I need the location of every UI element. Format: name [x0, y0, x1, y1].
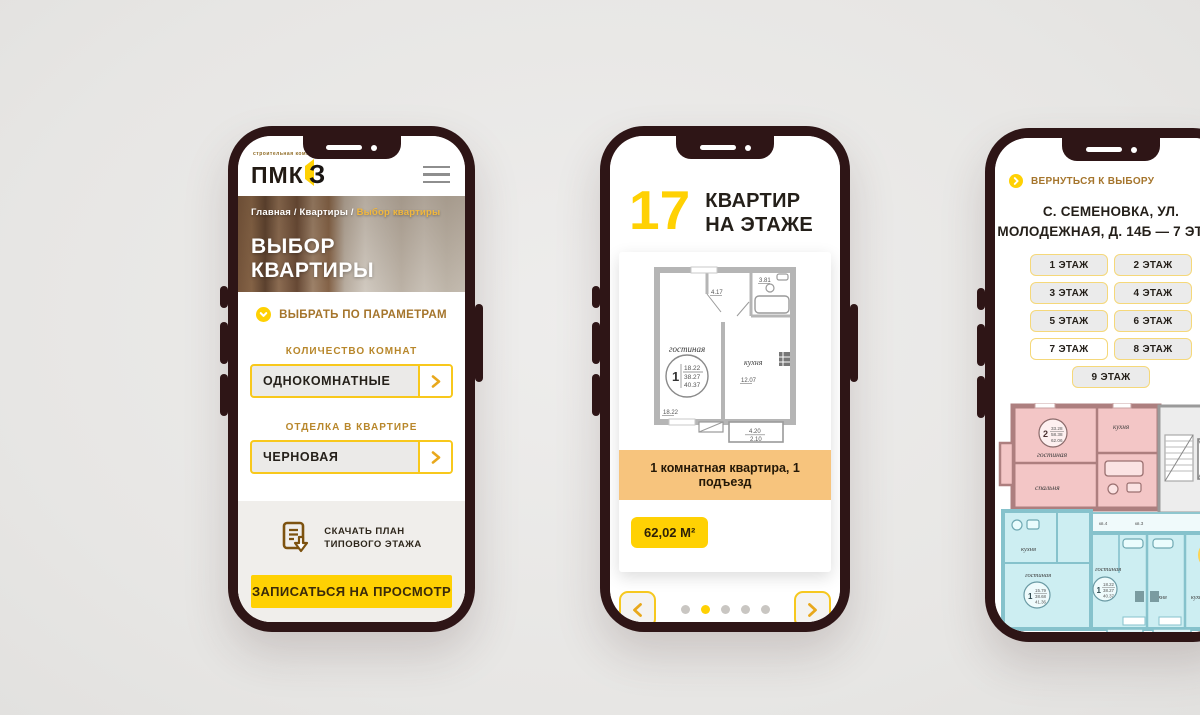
mute-switch [592, 286, 600, 308]
svg-text:гостиная: гостиная [1025, 572, 1051, 579]
svg-text:40.37: 40.37 [684, 382, 701, 389]
finish-select-value: ЧЕРНОВАЯ [252, 442, 418, 472]
breadcrumb-prefix[interactable]: Главная / Квартиры / [251, 207, 357, 218]
apartments-count-label: КВАРТИР НА ЭТАЖЕ [705, 186, 813, 237]
mute-switch [220, 286, 228, 308]
camera-dot [1131, 147, 1137, 153]
floor-button-7-selected[interactable]: 7 ЭТАЖ [1030, 338, 1108, 360]
carousel-dots [681, 605, 770, 614]
next-button[interactable] [794, 591, 831, 622]
chevron-left-icon [632, 602, 643, 618]
phone-notch [1062, 138, 1160, 161]
power-button [850, 304, 858, 382]
svg-text:гостиная: гостиная [1095, 566, 1121, 573]
screen-filter-page: строительная компания ПМК З Главная / К [238, 136, 465, 622]
breadcrumb[interactable]: Главная / Квартиры / Выбор квартиры [251, 207, 452, 218]
download-plan-label: СКАЧАТЬ ПЛАН ТИПОВОГО ЭТАЖА [324, 525, 421, 552]
finish-filter-label: ОТДЕЛКА В КВАРТИРЕ [238, 422, 465, 433]
breadcrumb-current: Выбор квартиры [357, 207, 441, 218]
svg-text:15.79: 15.79 [1035, 588, 1047, 593]
camera-dot [745, 145, 751, 151]
chevron-right-icon [807, 602, 818, 618]
choose-by-params-label: ВЫБРАТЬ ПО ПАРАМЕТРАМ [279, 309, 447, 321]
footer-section: СКАЧАТЬ ПЛАН ТИПОВОГО ЭТАЖА ЗАПИСАТЬСЯ Н… [238, 501, 465, 622]
svg-text:спальня: спальня [1035, 483, 1060, 492]
volume-down-button [220, 374, 228, 416]
rooms-select-arrow[interactable] [418, 366, 451, 396]
screen-floor-select: ВЕРНУТЬСЯ К ВЫБОРУ С. СЕМЕНОВКА, УЛ. МОЛ… [995, 138, 1200, 632]
svg-text:41.36: 41.36 [1035, 600, 1047, 605]
carousel-pager [610, 572, 840, 622]
camera-dot [371, 145, 377, 151]
apartment-floor-plan: гостиная кухня 4.17 3.81 12.07 18.22 4.2… [641, 264, 809, 446]
svg-text:1: 1 [672, 369, 679, 384]
floor-button-8[interactable]: 8 ЭТАЖ [1114, 338, 1192, 360]
floor-button-3[interactable]: 3 ЭТАЖ [1030, 282, 1108, 304]
volume-down-button [592, 374, 600, 416]
floor-button-1[interactable]: 1 ЭТАЖ [1030, 254, 1108, 276]
svg-text:кухня: кухня [1191, 595, 1200, 601]
svg-text:38.27: 38.27 [684, 374, 701, 381]
chevron-down-circle-icon [256, 307, 271, 322]
svg-text:12.07: 12.07 [741, 378, 757, 384]
svg-text:гостиная: гостиная [669, 344, 705, 354]
floor-button-2[interactable]: 2 ЭТАЖ [1114, 254, 1192, 276]
phone-notch [303, 136, 401, 159]
svg-text:З: З [309, 159, 325, 187]
volume-down-button [977, 376, 985, 418]
svg-text:кухня: кухня [744, 358, 763, 367]
floor-button-4[interactable]: 4 ЭТАЖ [1114, 282, 1192, 304]
apartments-count-number: 17 [629, 186, 690, 234]
carousel-dot[interactable] [761, 605, 770, 614]
svg-text:62.06: 62.06 [1051, 438, 1063, 443]
svg-text:2.10: 2.10 [750, 437, 762, 443]
logo-digit-mark: З [304, 158, 328, 187]
floor-plan-container[interactable]: кухня 2 33.28 58.38 62.06 гостиная спаль… [995, 403, 1200, 632]
phone-mockup-2: 17 КВАРТИР НА ЭТАЖЕ [600, 126, 850, 632]
speaker-slot [326, 145, 362, 150]
download-plan-link[interactable]: СКАЧАТЬ ПЛАН ТИПОВОГО ЭТАЖА [250, 521, 453, 555]
svg-text:кв.4: кв.4 [1099, 521, 1108, 526]
phone-notch [676, 136, 774, 159]
power-button [475, 304, 483, 382]
finish-select-arrow[interactable] [418, 442, 451, 472]
mute-switch [977, 288, 985, 310]
carousel-dot[interactable] [741, 605, 750, 614]
building-floor-plan: кухня 2 33.28 58.38 62.06 гостиная спаль… [995, 403, 1200, 632]
chevron-right-icon [431, 450, 441, 465]
volume-up-button [592, 322, 600, 364]
area-badge-row: 62,02 М² [619, 500, 831, 572]
apartment-type-banner: 1 комнатная квартира, 1 подъезд [619, 450, 831, 500]
svg-text:38.68: 38.68 [1035, 594, 1047, 599]
building-title: С. СЕМЕНОВКА, УЛ. МОЛОДЕЖНАЯ, Д. 14Б — 7… [995, 202, 1200, 241]
carousel-dot-active[interactable] [701, 605, 710, 614]
back-to-selection-label: ВЕРНУТЬСЯ К ВЫБОРУ [1031, 176, 1154, 187]
svg-text:2: 2 [1043, 429, 1048, 439]
area-badge: 62,02 М² [631, 517, 708, 548]
apartment-card[interactable]: гостиная кухня 4.17 3.81 12.07 18.22 4.2… [619, 252, 831, 572]
svg-text:33.28: 33.28 [1051, 426, 1063, 431]
svg-text:1: 1 [1028, 592, 1033, 601]
floor-button-9[interactable]: 9 ЭТАЖ [1072, 366, 1150, 388]
svg-text:кв.3: кв.3 [1135, 521, 1144, 526]
svg-text:3.81: 3.81 [759, 278, 771, 284]
document-download-icon [281, 521, 313, 555]
carousel-dot[interactable] [681, 605, 690, 614]
chevron-right-icon [431, 374, 441, 389]
logo-text: ПМК [251, 164, 304, 187]
svg-text:кухня: кухня [1113, 423, 1129, 431]
floor-plan-container: гостиная кухня 4.17 3.81 12.07 18.22 4.2… [619, 252, 831, 450]
svg-text:18.22: 18.22 [663, 410, 679, 416]
svg-text:1: 1 [1097, 586, 1102, 595]
hero-banner: Главная / Квартиры / Выбор квартиры ВЫБО… [238, 196, 465, 292]
finish-select[interactable]: ЧЕРНОВАЯ [250, 440, 453, 474]
svg-text:4.17: 4.17 [711, 290, 723, 296]
svg-text:40.37: 40.37 [1103, 594, 1115, 599]
floor-button-6[interactable]: 6 ЭТАЖ [1114, 310, 1192, 332]
svg-text:кухня: кухня [1021, 546, 1036, 553]
page-title: ВЫБОР КВАРТИРЫ [251, 235, 452, 283]
svg-text:38.27: 38.27 [1103, 588, 1115, 593]
floor-selector: 1 ЭТАЖ 2 ЭТАЖ 3 ЭТАЖ 4 ЭТАЖ 5 ЭТАЖ 6 ЭТА… [1028, 254, 1194, 388]
svg-text:18.22: 18.22 [1103, 582, 1115, 587]
floor-button-5[interactable]: 5 ЭТАЖ [1030, 310, 1108, 332]
menu-icon[interactable] [423, 162, 450, 188]
screen-apartment-card: 17 КВАРТИР НА ЭТАЖЕ [610, 136, 840, 622]
svg-text:58.38: 58.38 [1051, 432, 1063, 437]
speaker-slot [700, 145, 736, 150]
svg-text:гостиная: гостиная [1037, 450, 1068, 459]
rooms-select-value: ОДНОКОМНАТНЫЕ [252, 366, 418, 396]
page-background: { "colors": { "accent_yellow": "#ffd103"… [0, 0, 1200, 715]
choose-by-params-toggle[interactable]: ВЫБРАТЬ ПО ПАРАМЕТРАМ [238, 307, 465, 322]
carousel-dot[interactable] [721, 605, 730, 614]
book-viewing-button[interactable]: ЗАПИСАТЬСЯ НА ПРОСМОТР [251, 575, 452, 608]
svg-text:4.20: 4.20 [749, 429, 761, 435]
rooms-filter-label: КОЛИЧЕСТВО КОМНАТ [238, 346, 465, 357]
prev-button[interactable] [619, 591, 656, 622]
svg-text:18.22: 18.22 [684, 365, 701, 372]
rooms-select[interactable]: ОДНОКОМНАТНЫЕ [250, 364, 453, 398]
phone-mockup-3: ВЕРНУТЬСЯ К ВЫБОРУ С. СЕМЕНОВКА, УЛ. МОЛ… [985, 128, 1200, 642]
speaker-slot [1086, 147, 1122, 152]
phone-mockup-1: строительная компания ПМК З Главная / К [228, 126, 475, 632]
volume-up-button [977, 324, 985, 366]
volume-up-button [220, 322, 228, 364]
chevron-circle-icon [1009, 174, 1023, 188]
